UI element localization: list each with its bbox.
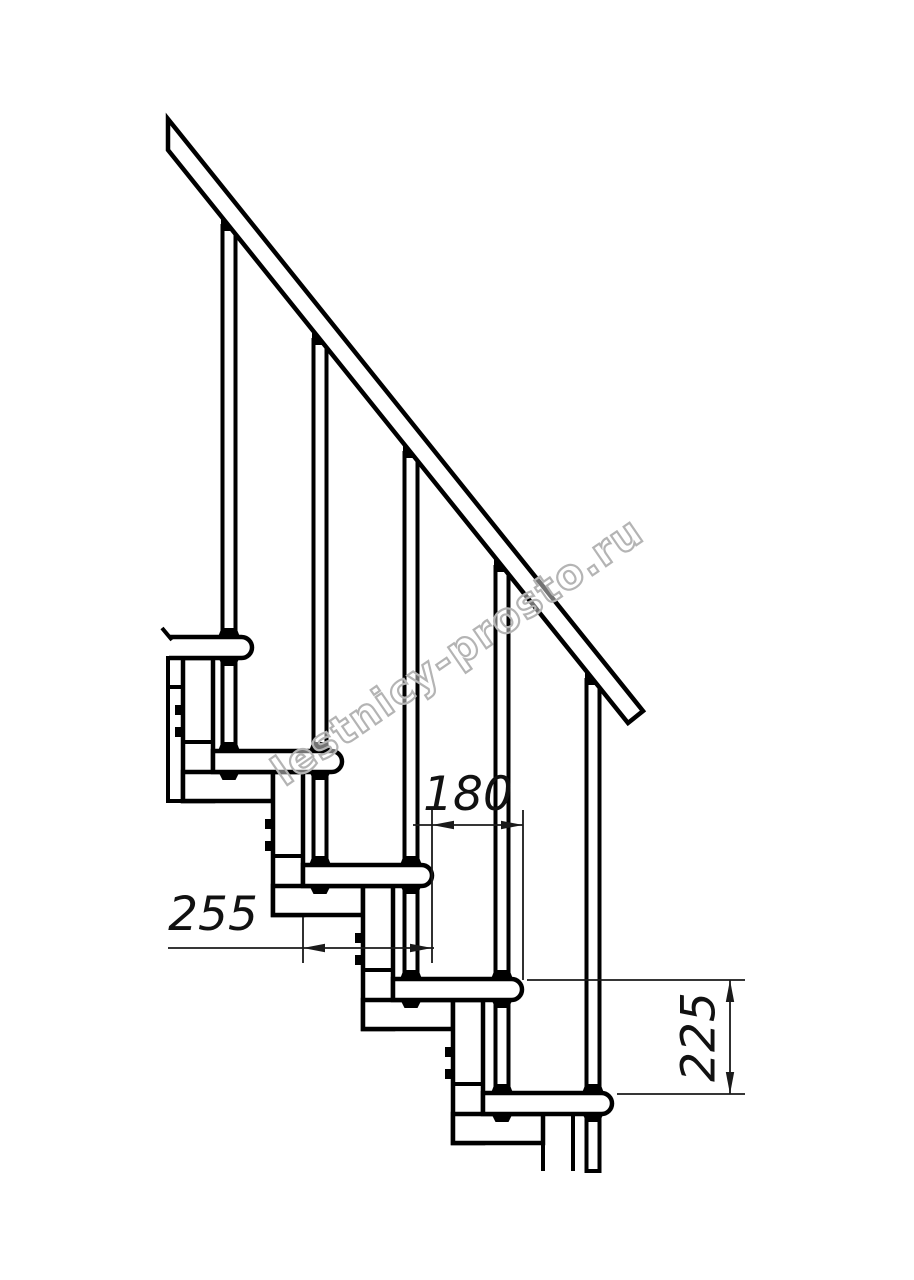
arrow-down-icon: [726, 1072, 734, 1094]
tread-cut-tick: [162, 628, 172, 640]
module-box-cut: [543, 1114, 573, 1171]
arrow-right-icon: [410, 944, 432, 952]
tread-5: [483, 1093, 612, 1114]
arrow-right-icon: [501, 821, 523, 829]
arrow-left-icon: [432, 821, 454, 829]
dimension-label-180: 180: [423, 767, 513, 822]
staircase-drawing-page: 180 255 225 lestnicy-prosto.ru: [0, 0, 914, 1280]
arrow-left-icon: [303, 944, 325, 952]
dimension-label-225: 225: [672, 992, 727, 1082]
dimension-225: 225: [527, 980, 745, 1094]
tread-4: [393, 979, 522, 1000]
baluster-tube: [223, 226, 236, 751]
dimension-label-255: 255: [168, 887, 258, 942]
baluster-tube: [314, 340, 327, 865]
staircase-side-elevation: 180 255 225 lestnicy-prosto.ru: [0, 0, 914, 1280]
tread-1: [169, 637, 252, 658]
tread-3: [303, 865, 432, 886]
arrow-up-icon: [726, 980, 734, 1002]
baluster-tube: [405, 453, 418, 979]
